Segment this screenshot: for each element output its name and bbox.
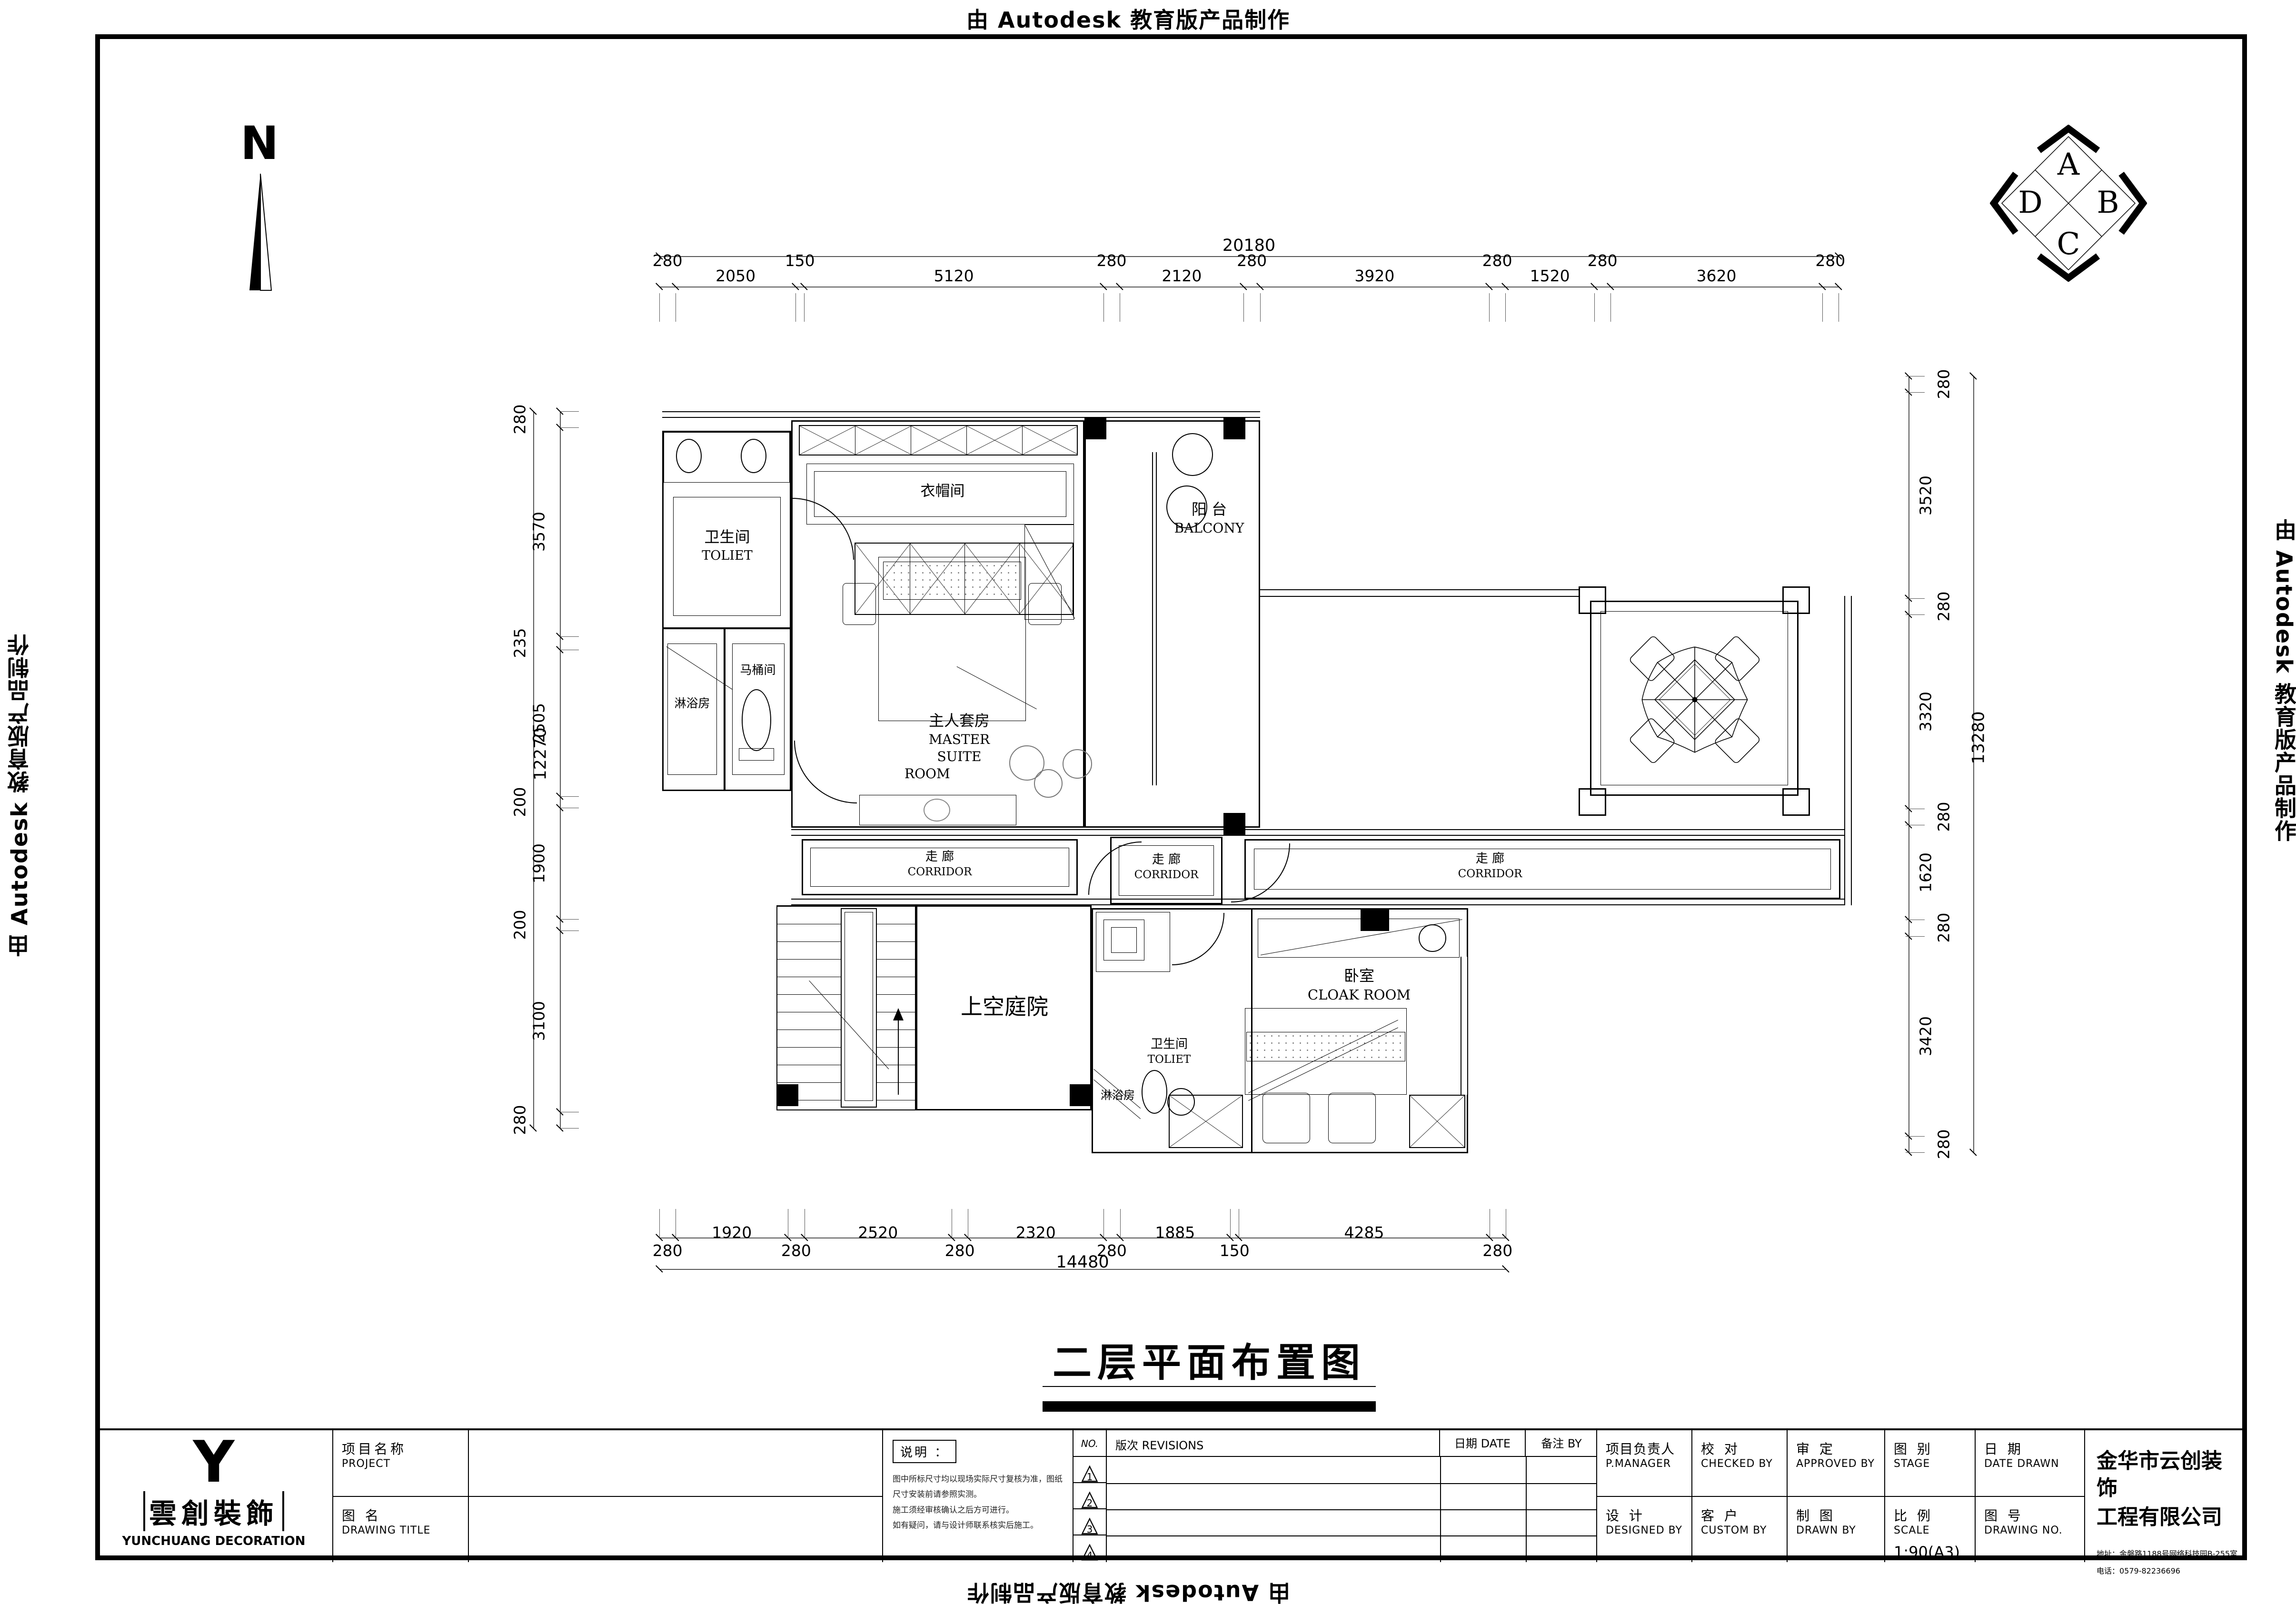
- wardrobe-box: [1409, 1095, 1465, 1148]
- dim-line: [788, 1209, 788, 1238]
- armchair-icon: [1172, 433, 1213, 476]
- dim-line: [1230, 1209, 1231, 1238]
- plant-icon: [1034, 769, 1063, 798]
- title-block: Y 雲創裝飾 YUNCHUANG DECORATION 项目名称 PROJECT…: [95, 1428, 2247, 1562]
- scale-value: 1:90(A3): [1894, 1543, 1975, 1561]
- field-pm: 项目负责人P.MANAGER: [1597, 1430, 1692, 1497]
- rev-grid-line: [1107, 1509, 1597, 1510]
- dim-line: [1906, 1152, 1925, 1153]
- dim-line: [560, 796, 579, 797]
- dim-lbl: 280: [653, 251, 683, 270]
- dim-line: [804, 293, 805, 322]
- watermark-left: 由 Autodesk 教育版产品制作: [4, 633, 35, 957]
- field-scale: 比 例SCALE 1:90(A3): [1885, 1497, 1976, 1562]
- dim-line: [560, 1112, 579, 1112]
- field-stage: 图 别STAGE: [1885, 1430, 1976, 1497]
- dim-line: [659, 293, 660, 322]
- dim-line: [1906, 825, 1925, 825]
- dim-lbl: 280: [1935, 1129, 1953, 1159]
- dim-line: [560, 636, 579, 637]
- dim-lbl: 280: [1935, 802, 1953, 832]
- dim-line: [560, 411, 561, 1128]
- dim-line: [1506, 1209, 1506, 1238]
- dim-line: [560, 427, 579, 428]
- dim-line: [1610, 293, 1611, 322]
- room-label-shower-lower: 淋浴房: [1095, 1088, 1141, 1103]
- elev-letter-c: C: [2057, 227, 2080, 262]
- dim-line: [952, 1209, 952, 1238]
- dim-line: [560, 808, 579, 808]
- desk-basin: [1419, 924, 1446, 952]
- rev-grid-line: [1440, 1457, 1441, 1562]
- wardrobe-box: [1169, 1095, 1243, 1148]
- dim-lbl: 1885: [1155, 1223, 1195, 1242]
- dim-line: [560, 919, 579, 920]
- dim-lbl: 280: [1482, 251, 1512, 270]
- value-drawing-title: [469, 1497, 883, 1562]
- value-project: [469, 1430, 883, 1497]
- plant-icon: [1063, 749, 1092, 779]
- dim-lbl: 2320: [1016, 1223, 1056, 1242]
- logo-y-icon: Y: [95, 1434, 332, 1491]
- company-panel: 金华市云创装饰 工程有限公司 地址：金磐路1188号网络科技园B-255室 电话…: [2085, 1430, 2242, 1562]
- dim-line: [1260, 293, 1261, 322]
- dim-line: [560, 931, 579, 931]
- column: [1070, 1084, 1092, 1106]
- watermark-right: 由 Autodesk 教育版产品制作: [2268, 519, 2296, 842]
- dim-line: [1839, 293, 1839, 322]
- column: [776, 1084, 798, 1106]
- dim-lbl: 5120: [934, 267, 974, 285]
- notes-label: 说明 ：: [893, 1440, 956, 1463]
- dim-lbl: 3920: [1354, 267, 1394, 285]
- window-wall: [1084, 411, 1260, 418]
- wall: [791, 899, 1844, 905]
- rev-col-rev: 版次 REVISIONS: [1107, 1430, 1440, 1457]
- dim-line: [560, 411, 579, 412]
- notes-text: 图中所标尺寸均以现场实际尺寸复核为准，图纸尺寸安装前请参照实测。 施工须经审核确…: [893, 1472, 1065, 1533]
- logo-en: YUNCHUANG DECORATION: [95, 1534, 332, 1548]
- dim-lbl: 280: [1815, 251, 1845, 270]
- dim-line: [1906, 598, 1925, 599]
- dim-lbl: 3320: [1917, 692, 1935, 732]
- room-label-toilet-upper: 卫生间 TOLIET: [676, 527, 778, 564]
- dim-lbl: 2050: [716, 267, 755, 285]
- dim-lbl: 280: [945, 1241, 975, 1260]
- dim-line: [1822, 293, 1823, 322]
- toilet-icon: [1142, 1070, 1167, 1114]
- room-label-shower-upper: 淋浴房: [666, 696, 719, 712]
- company-phone: 电话：0579-82236696: [2097, 1564, 2242, 1576]
- dim-line: [1239, 1209, 1239, 1238]
- stair-arrow: [898, 1019, 899, 1095]
- dim-line: [1243, 293, 1244, 322]
- balcony-wall: [1084, 420, 1260, 828]
- dim-lbl: 1620: [1917, 852, 1935, 892]
- dim-line: [560, 1128, 579, 1129]
- dim-lbl: 280: [1097, 251, 1127, 270]
- dim-lbl: 150: [785, 251, 815, 270]
- dim-lbl: 1900: [530, 843, 548, 883]
- drawing-title: 二层平面布置图: [1043, 1331, 1376, 1387]
- field-drawing-title: 图 名 DRAWING TITLE: [333, 1497, 469, 1562]
- field-project: 项目名称 PROJECT: [333, 1430, 469, 1497]
- field-date-drawn: 日 期DATE DRAWN: [1976, 1430, 2085, 1497]
- wall: [662, 627, 791, 629]
- dim-line: [676, 1209, 676, 1238]
- dim-line: [1103, 293, 1104, 322]
- dim-lbl: 12270: [531, 727, 550, 780]
- rev-col-date: 日期 DATE: [1440, 1430, 1526, 1457]
- dim-line: [1906, 920, 1925, 920]
- wall: [791, 829, 1844, 836]
- field-checked: 校 对CHECKED BY: [1692, 1430, 1788, 1497]
- wardrobe-hatch: [799, 425, 1078, 455]
- dim-chain-bottom: 2801920280252028023202801885150428528014…: [659, 1227, 1506, 1289]
- north-label: N: [240, 117, 278, 170]
- dim-line: [1906, 392, 1925, 393]
- dim-lbl: 4285: [1344, 1223, 1384, 1242]
- rev-col-by: 备注 BY: [1526, 1430, 1597, 1457]
- dim-lbl: 235: [511, 628, 529, 658]
- column: [1223, 417, 1245, 439]
- corridor-ceiling-inner: [1254, 849, 1831, 890]
- toilet-icon: [742, 689, 771, 751]
- dim-line: [1103, 1209, 1104, 1238]
- bed-pillows: [883, 562, 1021, 600]
- dim-lbl: 150: [1220, 1241, 1250, 1260]
- dim-chain-left: 280357023525052001900200310028012270: [514, 411, 581, 1128]
- room-label-master: 主人套房 MASTER SUITE ROOM: [904, 711, 1014, 783]
- toilet-tank: [739, 748, 774, 761]
- window-wall: [662, 411, 1084, 418]
- column: [1223, 813, 1245, 835]
- logo-cn: 雲創裝飾: [143, 1491, 284, 1531]
- room-label-closet: 衣帽间: [876, 482, 1009, 501]
- nightstand: [1028, 583, 1062, 625]
- dim-lbl: 200: [511, 787, 529, 817]
- bed-pillows: [1246, 1032, 1405, 1061]
- company-logo: Y 雲創裝飾 YUNCHUANG DECORATION: [95, 1430, 333, 1562]
- dim-line: [795, 293, 796, 322]
- dim-lbl: 3620: [1696, 267, 1736, 285]
- company-address: 地址：金磐路1188号网络科技园B-255室: [2097, 1547, 2242, 1559]
- elev-letter-b: B: [2097, 185, 2119, 220]
- dim-line: [1490, 1209, 1490, 1238]
- dim-lbl: 1520: [1530, 267, 1570, 285]
- dim-line: [1594, 293, 1595, 322]
- dim-lbl: 2520: [858, 1223, 898, 1242]
- sink-icon: [741, 439, 766, 473]
- column: [1084, 417, 1106, 439]
- dim-line: [1906, 1136, 1925, 1137]
- north-arrow-icon: [244, 171, 277, 295]
- title-underline: [1043, 1386, 1376, 1387]
- armchair-icon: [1166, 485, 1207, 528]
- dim-line: [659, 1209, 660, 1238]
- rev-grid-line: [1107, 1483, 1597, 1484]
- dim-lbl: 280: [1935, 913, 1953, 943]
- dim-lbl: 1920: [712, 1223, 752, 1242]
- rev-row: △1: [1073, 1457, 1107, 1483]
- room-label-courtyard: 上空庭院: [928, 993, 1081, 1021]
- dim-lbl: 3520: [1917, 475, 1935, 515]
- dim-line: [1906, 936, 1925, 937]
- rev-grid-line: [1107, 1535, 1597, 1536]
- revisions-table: NO. 版次 REVISIONS 日期 DATE 备注 BY △1 △2 △3 …: [1073, 1430, 1597, 1562]
- room-label-wc-stall: 马桶间: [729, 663, 786, 678]
- stair-rail: [841, 908, 877, 1108]
- dim-line: [1120, 1209, 1121, 1238]
- nightstand: [843, 583, 876, 625]
- fixture-inner: [1111, 927, 1137, 953]
- dim-chain-right: 280352028033202801620280342028013280: [1892, 376, 1988, 1152]
- stair-arrowhead: [893, 1008, 904, 1020]
- watermark-top: 由 Autodesk 教育版产品制作: [966, 3, 1290, 34]
- dim-line: [1120, 293, 1120, 322]
- elevation-symbol: A B C D: [1990, 125, 2147, 282]
- rev-row: △3: [1073, 1509, 1107, 1535]
- dim-lbl: 200: [511, 910, 529, 940]
- dim-lbl: 280: [511, 1105, 529, 1135]
- rev-row: △4: [1073, 1535, 1107, 1562]
- dim-line: [659, 287, 1839, 287]
- wall: [724, 629, 726, 790]
- elev-letter-d: D: [2018, 185, 2042, 220]
- dim-lbl: 280: [781, 1241, 811, 1260]
- company-name-2: 工程有限公司: [2097, 1504, 2242, 1531]
- dim-line: [676, 293, 676, 322]
- dim-lbl: 280: [1935, 369, 1953, 399]
- watermark-bottom: 由 Autodesk 教育版产品制作: [966, 1578, 1290, 1604]
- field-drawn: 制 图DRAWN BY: [1788, 1497, 1885, 1562]
- dim-lbl: 3570: [530, 512, 548, 552]
- dim-line: [968, 1209, 968, 1238]
- rev-grid-line: [1526, 1457, 1527, 1562]
- dim-line: [1906, 614, 1925, 615]
- drawing-sheet: 由 Autodesk 教育版产品制作 由 Autodesk 教育版产品制作 由 …: [0, 0, 2296, 1604]
- dim-lbl: 280: [1482, 1241, 1512, 1260]
- dim-lbl: 20180: [1223, 236, 1275, 255]
- chair-icon: [1262, 1093, 1310, 1143]
- chair-icon: [1328, 1093, 1376, 1143]
- dim-line: [1505, 293, 1506, 322]
- dim-line: [1906, 809, 1925, 809]
- column: [1361, 908, 1389, 931]
- field-approved: 审 定APPROVED BY: [1788, 1430, 1885, 1497]
- notes-panel: 说明 ： 图中所标尺寸均以现场实际尺寸复核为准，图纸尺寸安装前请参照实测。 施工…: [883, 1430, 1073, 1562]
- dim-lbl: 280: [1935, 591, 1953, 621]
- dim-line: [805, 1209, 805, 1238]
- sink-icon: [676, 439, 702, 473]
- dim-line: [560, 650, 579, 650]
- dim-lbl: 280: [511, 405, 529, 435]
- field-drawing-no: 图 号DRAWING NO.: [1976, 1497, 2085, 1562]
- rev-row: △2: [1073, 1483, 1107, 1509]
- window-wall: [1461, 957, 1468, 1095]
- room-label-corridor-right: 走 廊 CORRIDOR: [1442, 851, 1538, 881]
- console-basin: [924, 799, 950, 822]
- field-custom: 客 户CUSTOM BY: [1692, 1497, 1788, 1562]
- patio-umbrella-table-icon: [1614, 619, 1776, 781]
- dim-lbl: 3420: [1917, 1016, 1935, 1056]
- window-wall: [1844, 596, 1852, 905]
- field-designed: 设 计DESIGNED BY: [1597, 1497, 1692, 1562]
- dim-lbl: 280: [653, 1241, 683, 1260]
- dim-lbl: 3100: [530, 1001, 548, 1041]
- window-wall: [1260, 589, 1589, 597]
- rev-col-no: NO.: [1073, 1430, 1107, 1457]
- company-name-1: 金华市云创装饰: [2097, 1447, 2242, 1502]
- title-underline-thick: [1043, 1401, 1376, 1412]
- dim-chain-top: 2802050150512028021202803920280152028036…: [659, 235, 1839, 307]
- room-label-toilet-lower: 卫生间 TOLIET: [1136, 1037, 1203, 1067]
- room-label-bedroom: 卧室 CLOAK ROOM: [1285, 966, 1433, 1004]
- dim-line: [1908, 376, 1909, 1152]
- dim-lbl: 14480: [1056, 1253, 1109, 1272]
- dim-line: [1906, 376, 1925, 376]
- dim-lbl: 280: [1588, 251, 1618, 270]
- sliding-door-track: [1152, 452, 1157, 785]
- dim-lbl: 2120: [1162, 267, 1202, 285]
- room-label-corridor-left: 走 廊 CORRIDOR: [892, 849, 987, 880]
- dim-line: [1489, 293, 1490, 322]
- elev-letter-a: A: [2057, 147, 2080, 182]
- dim-lbl: 13280: [1969, 711, 1988, 764]
